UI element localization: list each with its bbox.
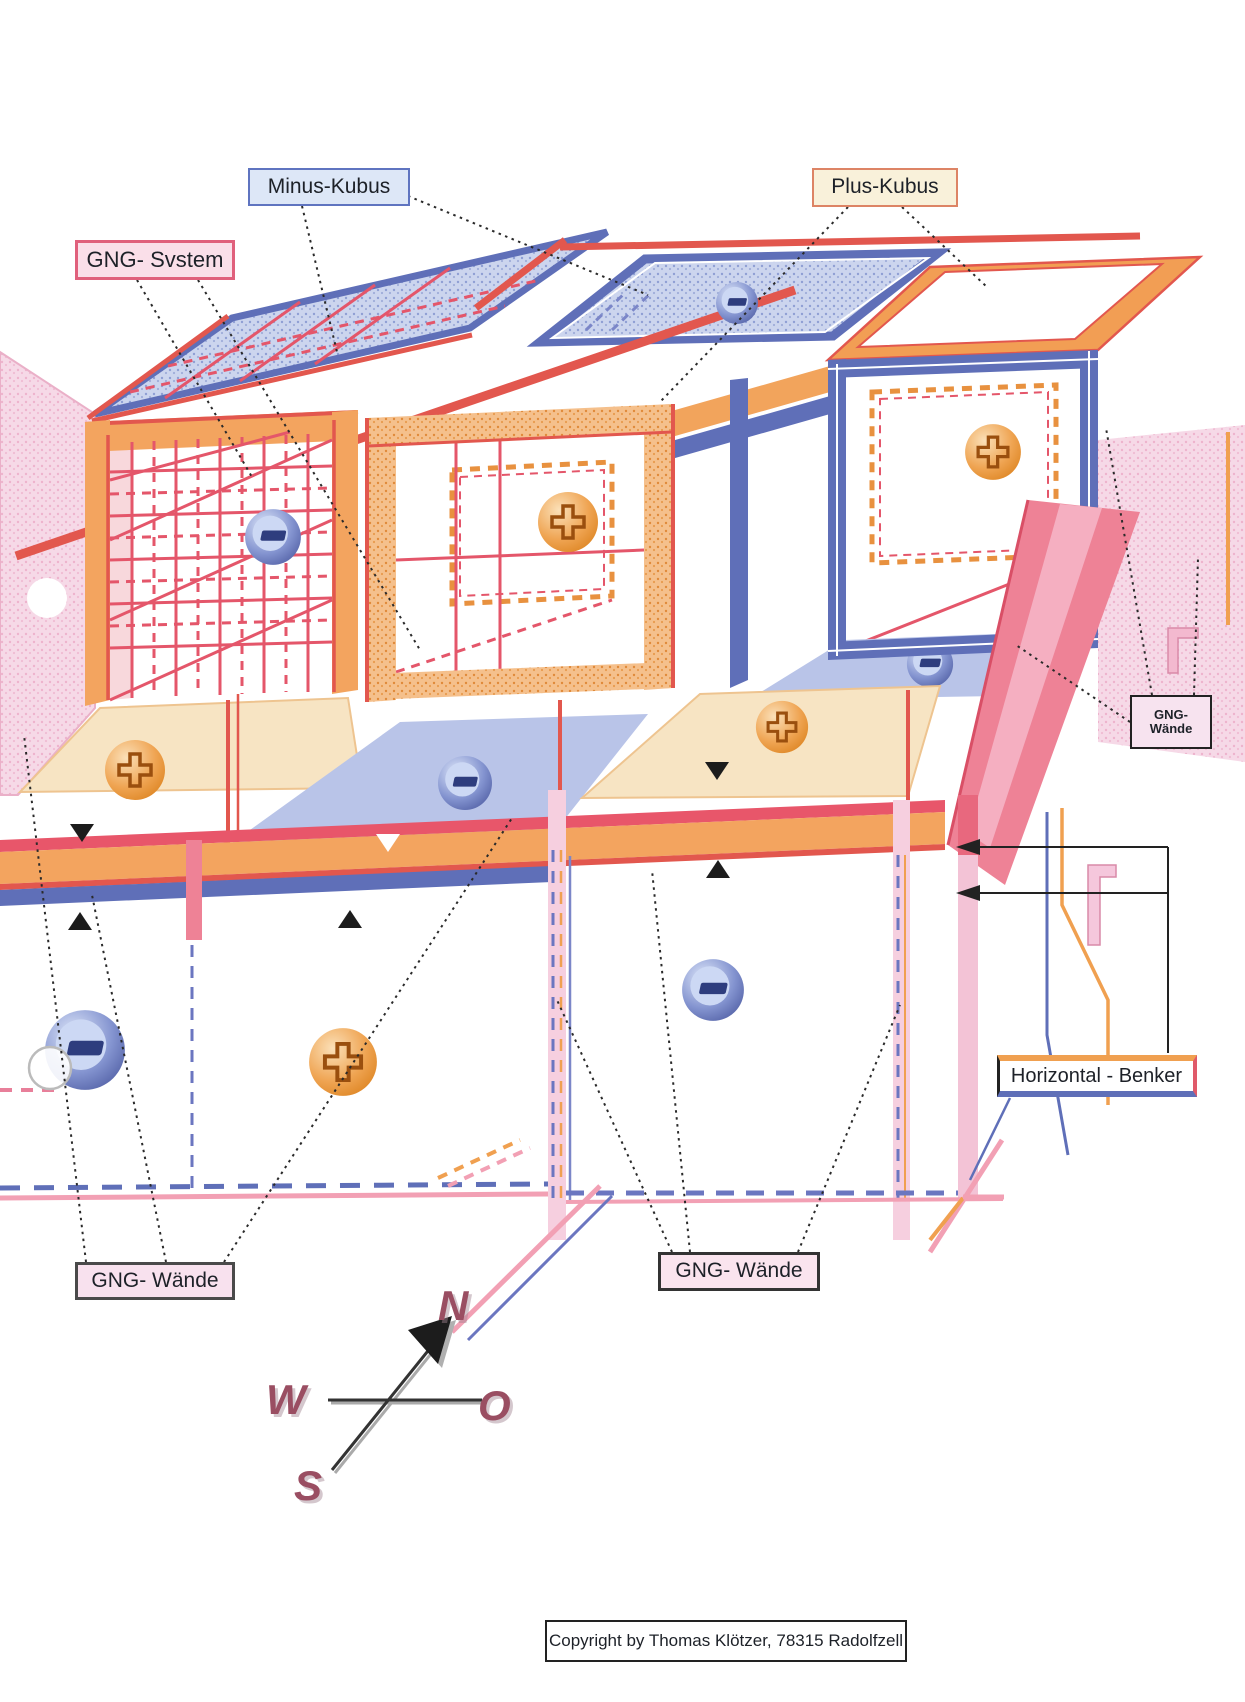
compass-north-letter: N (438, 1282, 468, 1330)
horizontal-benker-label: Horizontal - Benker (997, 1055, 1197, 1097)
plus-sphere (309, 1028, 377, 1096)
copyright-notice: Copyright by Thomas Klötzer, 78315 Radol… (545, 1620, 907, 1662)
plus-cube-middle (367, 404, 673, 702)
gng-waende-bottom-left-label: GNG- Wände (75, 1262, 235, 1300)
gng-waende-right-label: GNG- Wände (1130, 695, 1212, 749)
gng-system-label: GNG- Svstem (75, 240, 235, 280)
lower-room-spheres (29, 959, 744, 1096)
compass-east-letter: O (478, 1382, 511, 1430)
minus-sphere (438, 756, 492, 810)
minus-kubus-label: Minus-Kubus (248, 168, 410, 206)
cream-floor-right (582, 686, 940, 798)
minus-sphere (682, 959, 744, 1021)
gng-waende-right-line2: Wände (1150, 722, 1193, 736)
plus-sphere (538, 492, 598, 552)
plus-sphere (105, 740, 165, 800)
compass-west-letter: W (266, 1376, 306, 1424)
bottom-dashed-boundaries (0, 1140, 1004, 1340)
gng-waende-right-line1: GNG- (1154, 708, 1188, 722)
compass-south-letter: S (294, 1462, 322, 1510)
diagram-page: Minus-Kubus Plus-Kubus GNG- Svstem GNG- … (0, 0, 1245, 1702)
plus-kubus-label: Plus-Kubus (812, 168, 958, 207)
compass-rose (328, 1316, 485, 1473)
gng-waende-bottom-mid-label: GNG- Wände (658, 1252, 820, 1291)
left-pink-wall (0, 352, 95, 1090)
plus-sphere (965, 424, 1021, 480)
plus-sphere (756, 701, 808, 753)
minus-cube-left (85, 410, 358, 706)
minus-sphere (245, 509, 301, 565)
minus-sphere (716, 282, 758, 324)
